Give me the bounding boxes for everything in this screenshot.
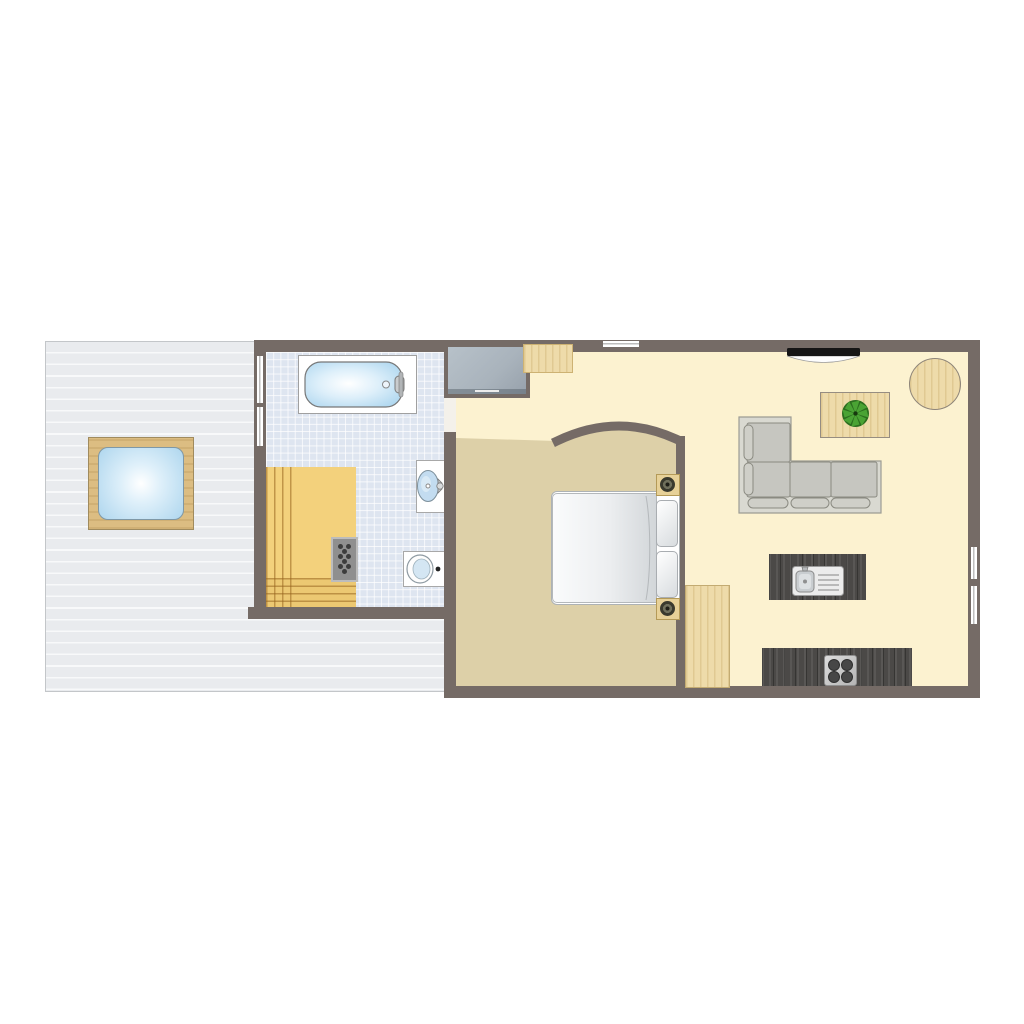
duvet-fold	[646, 496, 650, 600]
sofa-front-edge	[831, 498, 870, 508]
sofa-cushion	[831, 462, 877, 497]
bedside-lamp-icon	[660, 477, 675, 492]
burner	[828, 671, 840, 683]
sofa-front-edge	[748, 498, 788, 508]
island-faucet-icon	[802, 567, 808, 571]
bed-pillow-1	[656, 500, 678, 547]
wardrobe-handle	[475, 390, 499, 393]
hot-tub-water	[98, 447, 184, 520]
nightstand-top	[656, 474, 680, 496]
sofa-armrest	[744, 463, 753, 495]
bathtub	[298, 355, 417, 414]
window-top	[603, 341, 639, 347]
window-bathroom-2	[257, 407, 263, 446]
wall-bathroom-right-lower	[444, 432, 456, 686]
window-right-2	[971, 586, 977, 624]
tv-screen-arc	[787, 356, 860, 369]
bed-pillow-2	[656, 551, 678, 598]
bedside-lamp-icon	[660, 601, 675, 616]
sofa-front-edge	[791, 498, 829, 508]
hot-tub	[88, 437, 194, 530]
nightstand-bottom	[656, 598, 680, 620]
burner	[828, 659, 840, 671]
wall-shelf	[523, 344, 573, 373]
flush-button	[436, 567, 441, 572]
sauna-stones	[338, 544, 343, 549]
basin-drain	[803, 580, 807, 584]
bedroom-cabinet	[685, 585, 730, 688]
window-bathroom-1	[257, 356, 263, 403]
wall-right	[968, 352, 980, 698]
burner	[841, 659, 853, 671]
floor-plan-canvas	[0, 0, 1024, 1024]
island-sink	[792, 566, 844, 596]
bathroom-sink	[416, 460, 445, 513]
tub-drain	[383, 381, 390, 388]
sauna-heater	[331, 537, 358, 582]
sauna-planks-horizontal	[266, 578, 356, 608]
cooktop	[824, 655, 857, 686]
l-shaped-sofa	[738, 414, 886, 517]
toilet	[403, 551, 446, 587]
wall-tv	[787, 348, 860, 356]
bed-duvet	[552, 493, 657, 603]
window-right-1	[971, 547, 977, 579]
sofa-cushion	[790, 462, 831, 497]
sofa-armrest	[744, 425, 753, 460]
round-table	[909, 358, 961, 410]
wall-bathroom-bottom	[248, 607, 456, 619]
wardrobe	[444, 343, 530, 398]
sink-drain	[426, 484, 430, 488]
burner	[841, 671, 853, 683]
